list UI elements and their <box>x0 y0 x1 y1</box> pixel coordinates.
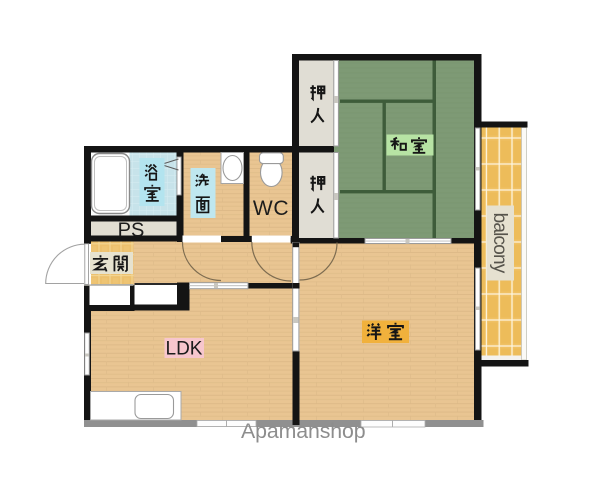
svg-text:PS: PS <box>118 220 145 242</box>
svg-text:LDK: LDK <box>166 339 203 360</box>
svg-text:WC: WC <box>253 197 289 220</box>
svg-text:Apamanshop: Apamanshop <box>241 419 366 443</box>
svg-text:balcony: balcony <box>489 213 510 274</box>
